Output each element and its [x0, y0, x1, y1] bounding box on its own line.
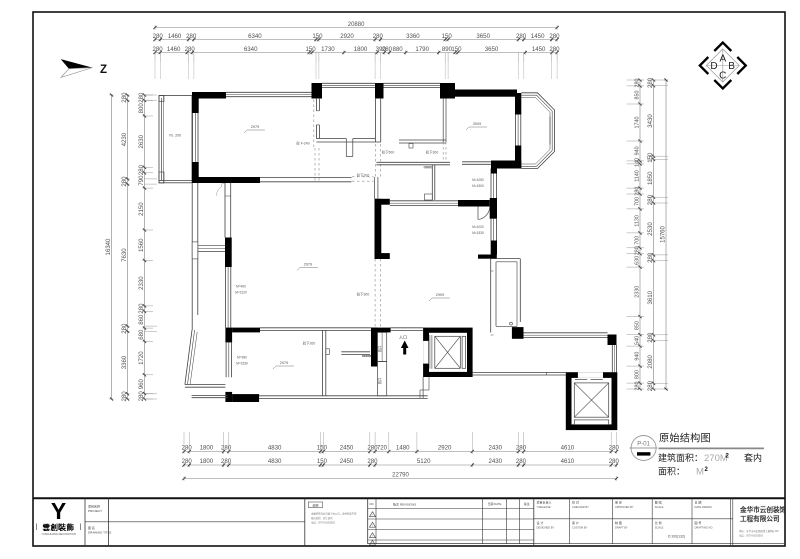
- svg-text:6340: 6340: [244, 46, 258, 53]
- svg-text:850: 850: [634, 91, 640, 100]
- svg-text:280: 280: [516, 33, 527, 40]
- svg-text:270M: 270M: [704, 453, 728, 464]
- svg-text:B: B: [728, 61, 735, 72]
- svg-text:2920: 2920: [340, 33, 354, 40]
- svg-text:擅自复制、转让使用: 擅自复制、转让使用: [311, 516, 333, 520]
- svg-text:1790: 1790: [415, 46, 429, 53]
- svg-text:M=400: M=400: [236, 285, 246, 289]
- svg-text:YUNCHUANG DECORATION: YUNCHUANG DECORATION: [41, 532, 76, 536]
- svg-text:960: 960: [138, 379, 145, 390]
- svg-text:图 名: 图 名: [88, 525, 95, 530]
- svg-text:280: 280: [382, 46, 393, 53]
- svg-text:3650: 3650: [485, 46, 499, 53]
- svg-text:Z: Z: [100, 64, 107, 76]
- svg-text:2979: 2979: [304, 263, 312, 267]
- svg-text:备注: 备注: [524, 502, 530, 506]
- svg-text:150: 150: [442, 33, 453, 40]
- svg-text:1450: 1450: [532, 46, 546, 53]
- svg-text:本图纸所有权归属于本公司，未经同意不得: 本图纸所有权归属于本公司，未经同意不得: [311, 512, 357, 516]
- svg-text:700: 700: [634, 236, 640, 245]
- svg-text:7630: 7630: [121, 248, 128, 262]
- svg-text:D:100(132): D:100(132): [668, 535, 685, 539]
- svg-text:280: 280: [516, 445, 527, 452]
- svg-text:280: 280: [186, 33, 197, 40]
- svg-text:APPROVED BY: APPROVED BY: [615, 505, 634, 509]
- svg-text:项目名称: 项目名称: [88, 504, 100, 509]
- svg-text:280: 280: [138, 303, 145, 314]
- svg-text:NO.: NO.: [369, 502, 374, 506]
- svg-text:880: 880: [393, 46, 404, 53]
- svg-text:940: 940: [634, 352, 640, 361]
- svg-text:150: 150: [451, 46, 462, 53]
- svg-text:1140: 1140: [634, 170, 640, 182]
- svg-text:150: 150: [306, 46, 317, 53]
- svg-text:1450: 1450: [531, 33, 545, 40]
- svg-text:项目负责人: 项目负责人: [537, 500, 552, 505]
- svg-text:1800: 1800: [200, 458, 214, 465]
- svg-text:比 例: 比 例: [655, 520, 662, 525]
- svg-text:280: 280: [609, 445, 620, 452]
- svg-text:630: 630: [634, 256, 640, 265]
- svg-text:280: 280: [121, 176, 128, 187]
- svg-text:砼下500: 砼下500: [382, 150, 395, 155]
- svg-text:150: 150: [647, 152, 654, 163]
- svg-text:入口: 入口: [399, 335, 407, 340]
- svg-text:面积：: 面积：: [658, 466, 685, 477]
- svg-text:280: 280: [516, 458, 527, 465]
- svg-text:280: 280: [221, 458, 232, 465]
- svg-text:280: 280: [647, 194, 654, 205]
- svg-text:4610: 4610: [561, 445, 575, 452]
- svg-text:700: 700: [634, 197, 640, 206]
- svg-text:M: M: [696, 467, 704, 478]
- svg-text:C: C: [719, 70, 726, 81]
- svg-text:280: 280: [647, 77, 654, 88]
- svg-text:280: 280: [647, 332, 654, 343]
- svg-text:日期:DATE: 日期:DATE: [488, 502, 502, 506]
- svg-text:280: 280: [221, 445, 232, 452]
- svg-text:图 号: 图 号: [695, 520, 702, 525]
- svg-text:3360: 3360: [406, 33, 420, 40]
- svg-text:280: 280: [647, 252, 654, 263]
- svg-text:1800: 1800: [200, 445, 214, 452]
- svg-text:280: 280: [549, 46, 560, 53]
- svg-text:280: 280: [609, 458, 620, 465]
- svg-text:2430: 2430: [489, 445, 503, 452]
- svg-text:2080: 2080: [647, 355, 654, 369]
- svg-text:15760: 15760: [660, 225, 666, 242]
- svg-text:800: 800: [634, 370, 640, 379]
- svg-text:砼下300: 砼下300: [357, 292, 370, 297]
- svg-text:2330: 2330: [138, 276, 145, 290]
- svg-text:3360: 3360: [121, 355, 128, 369]
- svg-text:客 户: 客 户: [572, 520, 579, 525]
- svg-text:1730: 1730: [321, 46, 335, 53]
- svg-text:M=1050: M=1050: [472, 178, 484, 182]
- svg-text:280: 280: [121, 391, 128, 402]
- svg-text:280: 280: [138, 164, 145, 175]
- svg-text:2150: 2150: [138, 202, 145, 216]
- svg-text:DRAFT BY: DRAFT BY: [615, 526, 628, 530]
- svg-text:3610: 3610: [647, 290, 654, 304]
- svg-text:1460: 1460: [168, 33, 182, 40]
- svg-text:审 定: 审 定: [615, 500, 622, 505]
- svg-text:DRAWING TITLE: DRAWING TITLE: [88, 531, 111, 535]
- svg-text:M=1530: M=1530: [236, 362, 248, 366]
- svg-text:2430: 2430: [489, 458, 503, 465]
- svg-text:140: 140: [634, 158, 640, 167]
- svg-text:2909: 2909: [436, 293, 444, 297]
- svg-text:M=2120: M=2120: [235, 291, 247, 295]
- svg-text:套内: 套内: [744, 452, 762, 463]
- svg-text:管井: 管井: [377, 346, 382, 352]
- svg-text:540: 540: [634, 336, 640, 345]
- svg-text:地址：金华市宾虹路国贸大厦B座 14F: 地址：金华市宾虹路国贸大厦B座 14F: [739, 529, 779, 533]
- svg-text:16340: 16340: [106, 238, 112, 255]
- svg-text:20880: 20880: [348, 22, 365, 28]
- svg-text:1800: 1800: [354, 46, 368, 53]
- svg-text:日 期: 日 期: [695, 500, 702, 505]
- svg-text:管井: 管井: [377, 378, 382, 384]
- svg-text:150: 150: [317, 445, 328, 452]
- svg-text:DESIGNED BY: DESIGNED BY: [537, 526, 555, 530]
- svg-text:设 计: 设 计: [537, 520, 544, 525]
- svg-text:1130: 1130: [634, 215, 640, 227]
- svg-text:280: 280: [121, 92, 128, 103]
- svg-text:SCALE: SCALE: [655, 505, 664, 509]
- svg-text:280: 280: [138, 92, 145, 103]
- svg-text:850: 850: [634, 321, 640, 330]
- svg-text:150: 150: [317, 458, 328, 465]
- svg-text:说明: 说明: [312, 502, 318, 507]
- svg-text:DATE DRAWN: DATE DRAWN: [695, 505, 712, 509]
- svg-text:1720: 1720: [138, 351, 145, 365]
- svg-text:金华市云创装饰: 金华市云创装饰: [739, 505, 787, 514]
- svg-text:砼 F-240: 砼 F-240: [296, 141, 309, 146]
- svg-text:940: 940: [634, 146, 640, 155]
- svg-text:800: 800: [138, 103, 145, 114]
- svg-text:Yb. 200: Yb. 200: [169, 134, 181, 138]
- svg-text:4830: 4830: [268, 458, 282, 465]
- svg-text:砼下300: 砼下300: [426, 150, 439, 155]
- svg-text:280: 280: [647, 380, 654, 391]
- svg-text:Y: Y: [51, 498, 66, 524]
- svg-text:3650: 3650: [476, 33, 490, 40]
- svg-text:A: A: [719, 53, 726, 64]
- svg-text:1740: 1740: [634, 117, 640, 129]
- svg-text:2450: 2450: [340, 445, 354, 452]
- svg-text:DRAFTING NO.: DRAFTING NO.: [695, 526, 714, 530]
- svg-text:3009: 3009: [473, 122, 481, 126]
- svg-text:1480: 1480: [396, 445, 410, 452]
- svg-text:2979: 2979: [251, 125, 259, 129]
- svg-text:3430: 3430: [647, 114, 654, 128]
- svg-text:2450: 2450: [340, 458, 354, 465]
- svg-text:工程有限公司: 工程有限公司: [740, 514, 780, 523]
- svg-text:150: 150: [312, 33, 323, 40]
- svg-text:2920: 2920: [438, 445, 452, 452]
- svg-text:280: 280: [182, 458, 193, 465]
- svg-text:2630: 2630: [138, 134, 145, 148]
- svg-text:280: 280: [373, 33, 384, 40]
- svg-text:4830: 4830: [268, 445, 282, 452]
- svg-text:280: 280: [185, 46, 196, 53]
- svg-text:4610: 4610: [561, 458, 575, 465]
- svg-text:2330: 2330: [634, 286, 640, 298]
- svg-text:SCALE: SCALE: [655, 526, 664, 530]
- svg-text:砼下260: 砼下260: [303, 341, 316, 346]
- svg-text:2979: 2979: [280, 361, 288, 365]
- svg-text:电话：0579-83353555: 电话：0579-83353555: [311, 521, 336, 525]
- svg-text:280: 280: [367, 458, 378, 465]
- svg-text:280: 280: [182, 445, 193, 452]
- svg-text:M=990: M=990: [237, 356, 247, 360]
- svg-text:D: D: [710, 61, 717, 72]
- svg-text:720: 720: [377, 445, 388, 452]
- svg-text:280: 280: [549, 33, 560, 40]
- svg-text:5120: 5120: [417, 458, 431, 465]
- svg-text:原始结构图: 原始结构图: [659, 432, 711, 445]
- svg-text:860: 860: [138, 314, 145, 325]
- svg-text:制 图: 制 图: [615, 520, 622, 525]
- svg-text:图 幅: 图 幅: [655, 500, 662, 505]
- svg-text:280: 280: [121, 323, 128, 334]
- svg-text:PROJECT: PROJECT: [88, 509, 102, 513]
- svg-text:6340: 6340: [248, 33, 262, 40]
- svg-text:1560: 1560: [138, 238, 145, 252]
- svg-text:22790: 22790: [392, 472, 409, 478]
- svg-text:1850: 1850: [647, 171, 654, 185]
- svg-text:1460: 1460: [167, 46, 181, 53]
- svg-text:M=1500: M=1500: [472, 184, 484, 188]
- svg-text:2530: 2530: [647, 222, 654, 236]
- svg-text:电话：0579-83353555: 电话：0579-83353555: [739, 534, 764, 538]
- svg-text:280: 280: [153, 46, 164, 53]
- svg-text:CHECKED BY: CHECKED BY: [572, 505, 589, 509]
- svg-text:建筑面积：: 建筑面积：: [658, 452, 703, 463]
- svg-text:版次 REVISIONS: 版次 REVISIONS: [393, 502, 416, 507]
- svg-text:280: 280: [153, 33, 164, 40]
- svg-text:680: 680: [138, 329, 145, 340]
- svg-text:4230: 4230: [121, 132, 128, 146]
- svg-text:校 对: 校 对: [572, 500, 579, 505]
- svg-text:790: 790: [138, 175, 145, 186]
- svg-text:Y.RELEASE: Y.RELEASE: [537, 505, 551, 509]
- svg-text:P-01: P-01: [637, 442, 650, 448]
- svg-text:M=1530: M=1530: [472, 231, 484, 235]
- svg-text:CUSTOM BY: CUSTOM BY: [572, 526, 588, 530]
- svg-text:280: 280: [138, 391, 145, 402]
- svg-text:M=1020: M=1020: [472, 225, 484, 229]
